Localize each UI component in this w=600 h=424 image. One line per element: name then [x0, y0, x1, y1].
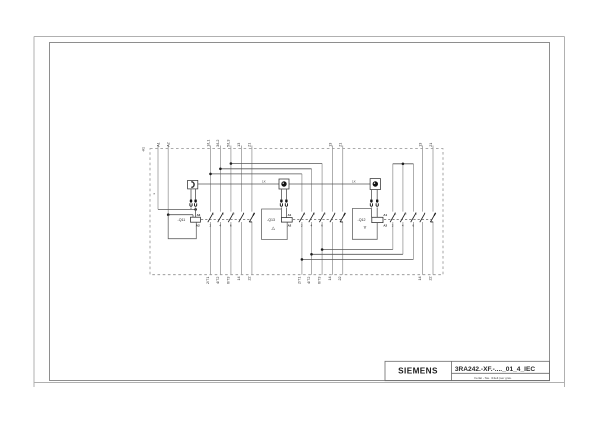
svg-text:A3: A3 — [197, 213, 201, 217]
svg-text:A1: A1 — [288, 213, 292, 217]
svg-text:21: 21 — [429, 143, 433, 147]
svg-text:3/L2: 3/L2 — [216, 140, 220, 147]
svg-text:2/T1: 2/T1 — [206, 277, 210, 284]
svg-text:6/T3: 6/T3 — [226, 277, 230, 284]
svg-text:A1: A1 — [383, 213, 387, 217]
svg-text:22: 22 — [338, 276, 342, 280]
svg-text:13: 13 — [237, 143, 241, 147]
svg-text:22: 22 — [247, 276, 251, 280]
svg-text:Ferlat - Ste. r13elt (ser grav: Ferlat - Ste. r13elt (ser grav. — [474, 376, 511, 380]
svg-text:5/L3: 5/L3 — [227, 140, 231, 147]
svg-text:13: 13 — [328, 143, 332, 147]
svg-text:SIEMENS: SIEMENS — [398, 367, 438, 376]
svg-text:14: 14 — [237, 276, 241, 280]
svg-text:21: 21 — [248, 143, 252, 147]
svg-text:2/T1: 2/T1 — [297, 277, 301, 284]
svg-text:22: 22 — [428, 276, 432, 280]
svg-text:-Q13: -Q13 — [267, 218, 275, 222]
svg-text:4/T2: 4/T2 — [307, 277, 311, 284]
svg-text:1X: 1X — [262, 180, 266, 184]
svg-text:A2: A2 — [288, 224, 292, 228]
svg-text:21: 21 — [339, 143, 343, 147]
svg-text:A2: A2 — [196, 224, 200, 228]
svg-text:1X: 1X — [352, 180, 356, 184]
svg-text:-Q11: -Q11 — [178, 218, 186, 222]
svg-text:Y: Y — [364, 225, 367, 230]
svg-text:A2: A2 — [167, 142, 171, 147]
svg-text:3RA242.-XF.-...._01_4_IEC: 3RA242.-XF.-...._01_4_IEC — [455, 366, 536, 373]
svg-text:-Q12: -Q12 — [358, 218, 366, 222]
svg-text:4/T2: 4/T2 — [216, 277, 220, 284]
svg-text:△: △ — [272, 226, 276, 231]
svg-text:14: 14 — [418, 276, 422, 280]
svg-text:A2: A2 — [383, 224, 387, 228]
svg-text:6/T3: 6/T3 — [318, 277, 322, 284]
svg-text:14: 14 — [328, 276, 332, 280]
svg-text:-A1: -A1 — [142, 147, 146, 152]
svg-text:13: 13 — [418, 143, 422, 147]
svg-text:1/L1: 1/L1 — [206, 140, 210, 147]
svg-text:A1: A1 — [156, 142, 160, 147]
